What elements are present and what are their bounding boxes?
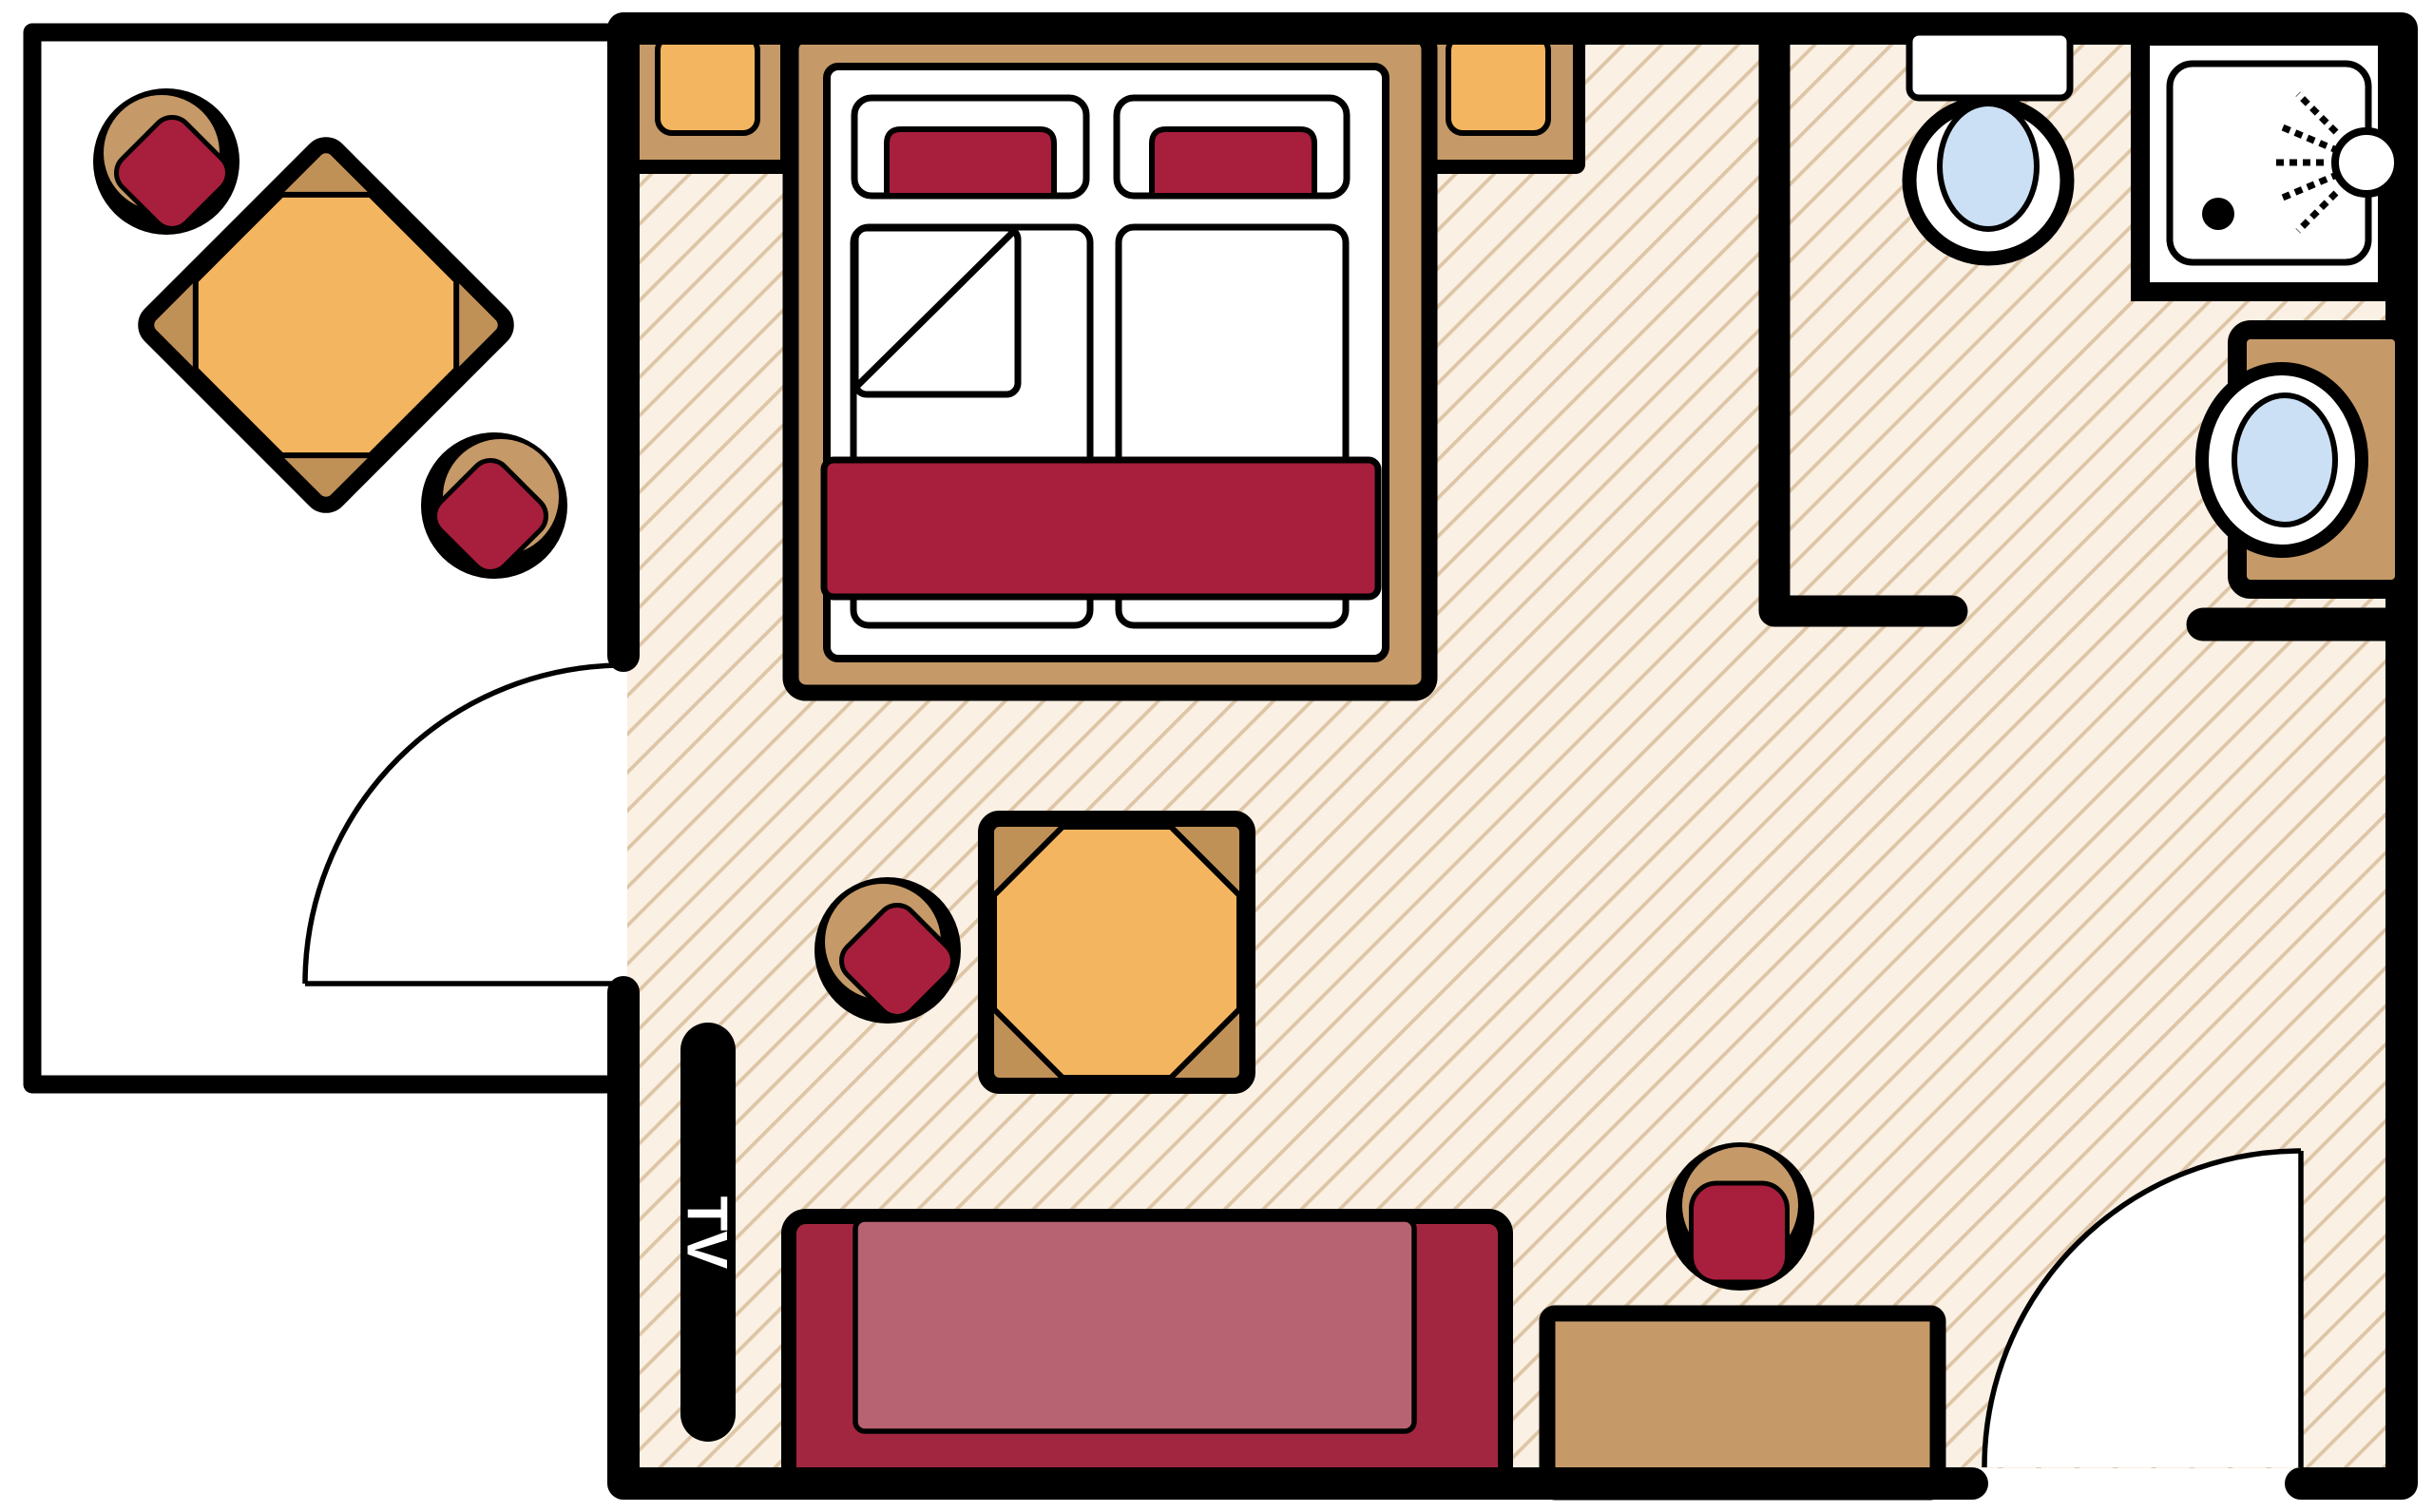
svg-text:TV: TV bbox=[676, 1196, 739, 1270]
